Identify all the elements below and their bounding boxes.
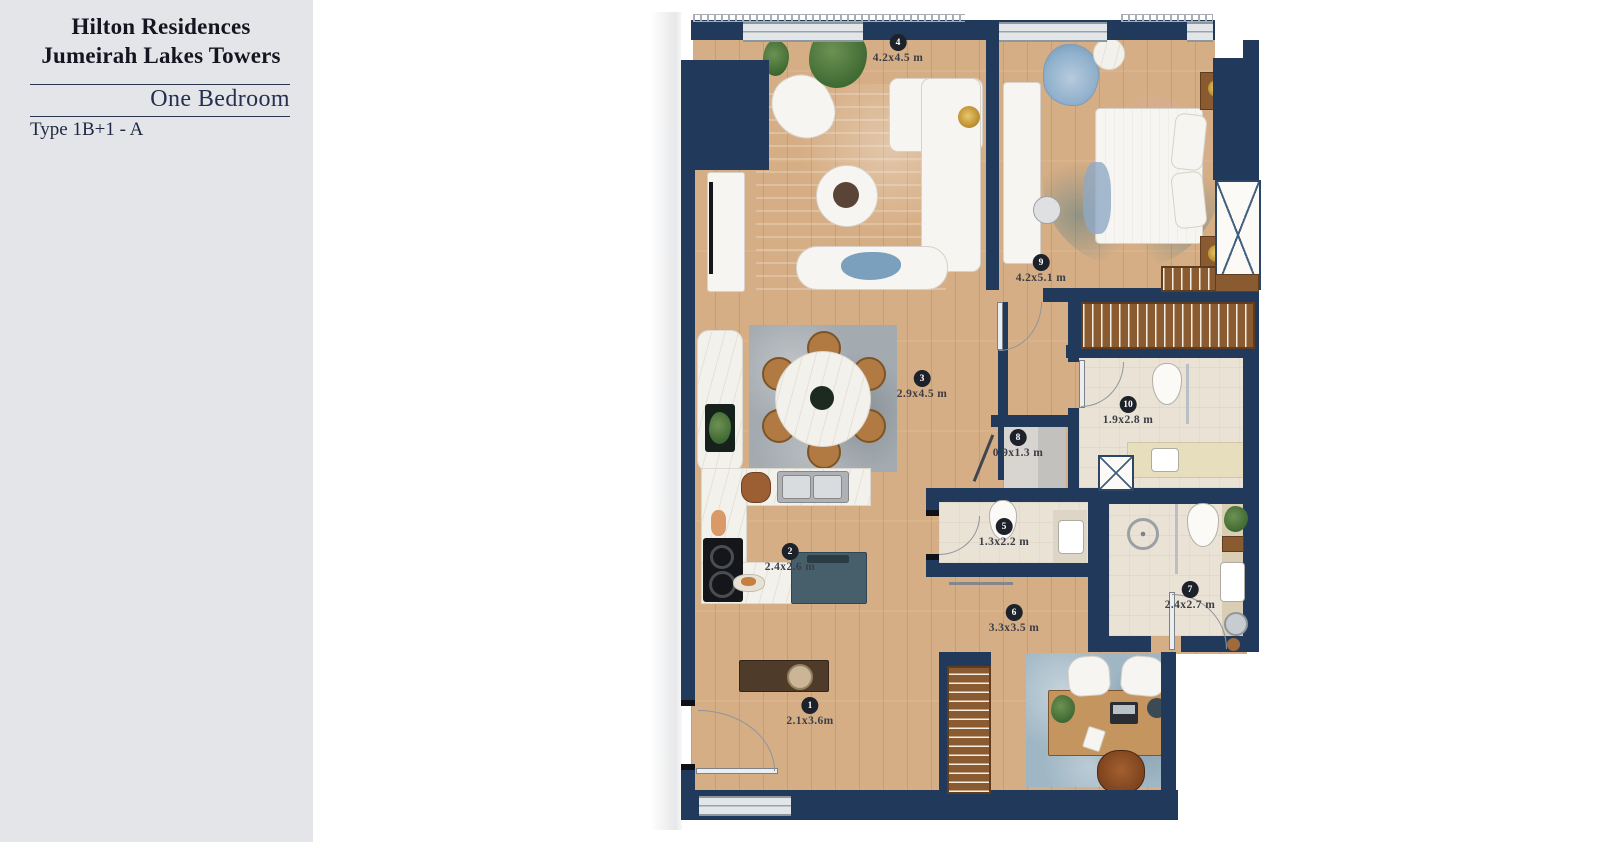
service-shaft	[1098, 455, 1134, 491]
shower-glass-bath7	[1175, 504, 1178, 574]
room-dimensions: 2.4x2.7 m	[1165, 599, 1216, 611]
wall-segment	[1068, 408, 1079, 488]
threshold-line	[949, 582, 1013, 585]
room-marker-3: 3 2.9x4.5 m	[897, 370, 948, 400]
room-dimensions: 1.9x2.8 m	[1103, 414, 1154, 426]
room-marker-1: 1 2.1x3.6m	[786, 697, 833, 727]
wall-segment	[926, 563, 1088, 577]
floor-plan: 4 4.2x4.5 m 9 4.2x5.1 m 3 2.9x4.5 m 10 1…	[681, 14, 1259, 822]
desk-chair-right	[1119, 654, 1166, 698]
bed-blanket	[1083, 162, 1111, 234]
room-dimensions: 3.3x3.5 m	[989, 622, 1040, 634]
door-jamb	[926, 554, 939, 560]
sink-bath5	[1058, 520, 1084, 554]
room-number-badge: 2	[782, 543, 799, 560]
coffee-table-bowl	[833, 182, 859, 208]
balcony-rail	[693, 14, 965, 22]
laptop-keyboard	[1113, 705, 1135, 714]
hall-vase	[787, 664, 813, 690]
window	[743, 22, 863, 42]
project-title-line1: Hilton Residences	[22, 12, 300, 41]
wall-segment	[986, 36, 999, 290]
room-marker-2: 2 2.4x2.6 m	[765, 543, 816, 573]
plate-food	[741, 577, 756, 586]
office-chair	[1097, 750, 1145, 794]
bedroom-armchair	[1043, 44, 1099, 106]
room-marker-6: 6 3.3x3.5 m	[989, 604, 1040, 634]
bathroom10-vanity-counter	[1127, 442, 1245, 478]
info-panel: Hilton Residences Jumeirah Lakes Towers …	[0, 0, 313, 842]
room-number-badge: 9	[1033, 254, 1050, 271]
sink-basin-left	[782, 475, 811, 499]
room-number-badge: 4	[890, 34, 907, 51]
room-dimensions: 2.9x4.5 m	[897, 388, 948, 400]
shower-glass-bath10	[1186, 364, 1189, 424]
wall-segment	[681, 60, 695, 706]
balcony-rail	[1121, 14, 1213, 22]
project-title: Hilton Residences Jumeirah Lakes Towers	[22, 12, 300, 70]
stove-burner-top	[710, 545, 734, 569]
wardrobe-block	[1213, 58, 1259, 180]
laundry-hanger-rail	[947, 666, 991, 794]
wardrobe-shelf	[1215, 274, 1259, 292]
door-jamb	[681, 700, 695, 706]
sink-basin-right	[813, 475, 842, 499]
bedroom-side-table	[1093, 38, 1125, 70]
room-marker-10: 10 1.9x2.8 m	[1103, 396, 1154, 426]
closet-hanger-rail-small	[1161, 266, 1217, 292]
cutting-board	[741, 472, 771, 503]
sink-bath10	[1151, 448, 1179, 472]
floor-lamp	[958, 106, 980, 128]
page-shadow	[650, 12, 682, 830]
hall-console	[739, 660, 829, 692]
bed-pillow-bottom	[1170, 170, 1208, 229]
desk-chair-left	[1067, 655, 1112, 698]
room-number-badge: 1	[802, 697, 819, 714]
room-number-badge: 5	[996, 518, 1013, 535]
vanity-stool	[1033, 196, 1061, 224]
unit-type-title: One Bedroom	[30, 86, 290, 113]
stove-burner-bottom	[709, 571, 736, 598]
kitchen-bottle	[711, 510, 726, 536]
divider-rule-bottom	[30, 116, 290, 117]
room-marker-8: 8 0.9x1.3 m	[993, 429, 1044, 459]
room-number-badge: 7	[1182, 581, 1199, 598]
room-marker-7: 7 2.4x2.7 m	[1165, 581, 1216, 611]
wall-segment	[1161, 652, 1176, 790]
bath7-shelf	[1222, 536, 1244, 552]
window	[699, 796, 791, 816]
window	[999, 22, 1107, 42]
door-jamb	[926, 510, 939, 516]
bath7-stool	[1227, 638, 1240, 651]
room-marker-5: 5 1.3x2.2 m	[979, 518, 1030, 548]
wall-segment	[1096, 504, 1109, 636]
room-marker-9: 9 4.2x5.1 m	[1016, 254, 1067, 284]
room-dimensions: 2.4x2.6 m	[765, 561, 816, 573]
mirror-stand	[1224, 612, 1248, 636]
window	[1187, 22, 1213, 42]
sink-bath7	[1220, 562, 1245, 602]
closet-hanger-rail	[1081, 302, 1255, 349]
room-dimensions: 4.2x5.1 m	[1016, 272, 1067, 284]
room-dimensions: 4.2x4.5 m	[873, 52, 924, 64]
wall-segment	[681, 770, 695, 790]
tv-screen	[709, 182, 713, 274]
door-jamb	[681, 764, 695, 770]
room-number-badge: 8	[1010, 429, 1027, 446]
wall-segment	[1068, 345, 1079, 362]
room-dimensions: 1.3x2.2 m	[979, 536, 1030, 548]
bed-pillow-top	[1170, 112, 1208, 171]
room-dimensions: 2.1x3.6m	[786, 715, 833, 727]
divider-rule-top	[30, 84, 290, 85]
room-number-badge: 10	[1120, 396, 1137, 413]
wall-segment	[991, 415, 1068, 427]
bedroom-dresser	[1003, 82, 1041, 264]
wall-segment	[939, 652, 947, 790]
room-number-badge: 6	[1006, 604, 1023, 621]
room-marker-4: 4 4.2x4.5 m	[873, 34, 924, 64]
dining-centerpiece	[810, 386, 834, 410]
plan-cutout-bottom-right	[1176, 654, 1259, 822]
room-dimensions: 0.9x1.3 m	[993, 447, 1044, 459]
project-title-line2: Jumeirah Lakes Towers	[22, 41, 300, 70]
wall-segment	[1096, 636, 1151, 652]
unit-type-code: Type 1B+1 - A	[30, 119, 290, 141]
wall-segment	[1088, 488, 1096, 652]
shower-head-bath7	[1127, 518, 1159, 550]
room-number-badge: 3	[914, 370, 931, 387]
